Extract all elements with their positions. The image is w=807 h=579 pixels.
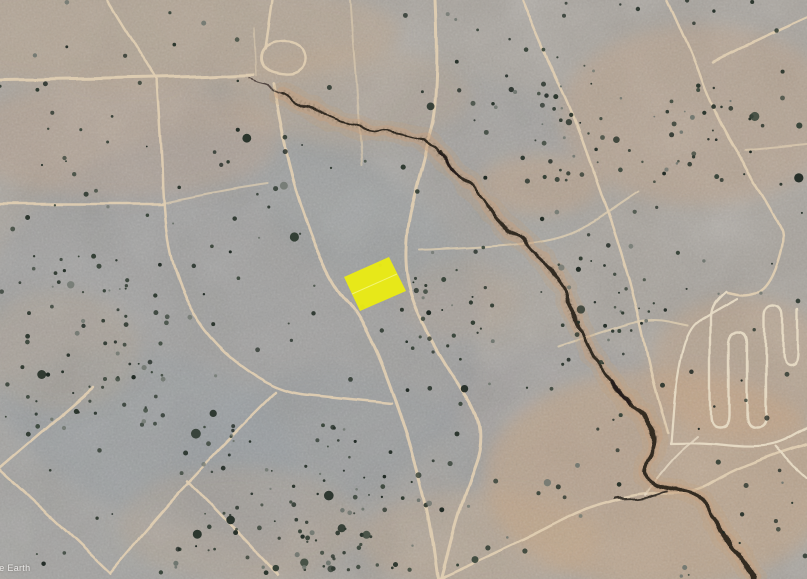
satellite-imagery	[0, 0, 807, 579]
satellite-map-view[interactable]: le Earth	[0, 0, 807, 579]
